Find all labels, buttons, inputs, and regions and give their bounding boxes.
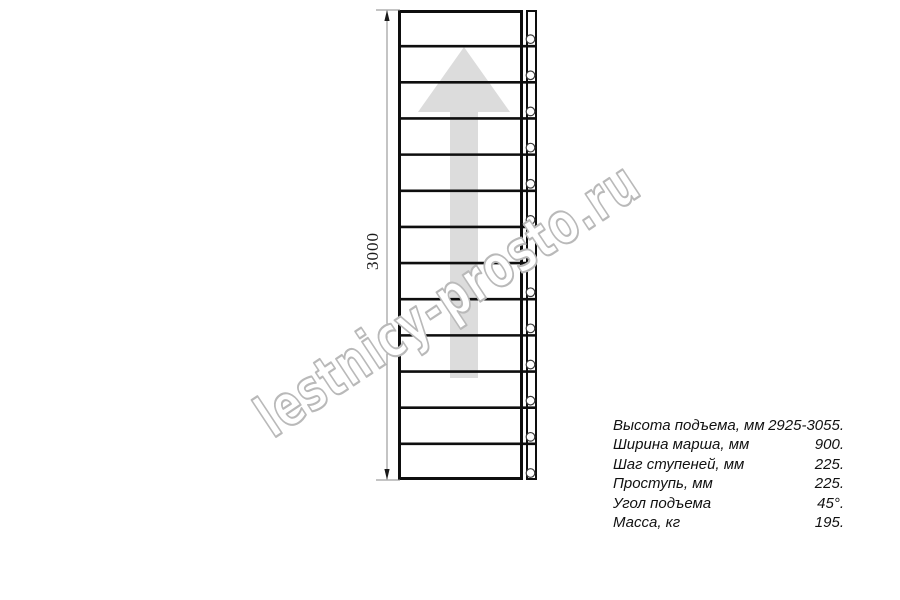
- rail-bolt-circle: [526, 71, 535, 80]
- spec-label: Угол подъема: [613, 494, 711, 513]
- spec-row: Угол подъема 45°.: [613, 494, 844, 513]
- spec-value: 195.: [815, 513, 844, 532]
- spec-value: 225.: [815, 474, 844, 493]
- watermark-text: lestnicy-prosto.ru: [243, 148, 652, 450]
- rail-bolt-circle: [526, 143, 535, 152]
- spec-row: Высота подъема, мм 2925-3055.: [613, 416, 844, 435]
- dimension-label: 3000: [363, 232, 382, 270]
- spec-value: 900.: [815, 435, 844, 454]
- spec-row: Масса, кг 195.: [613, 513, 844, 532]
- spec-label: Проступь, мм: [613, 474, 713, 493]
- rail-bolt-circle: [526, 396, 535, 405]
- spec-label: Шаг ступеней, мм: [613, 455, 744, 474]
- rail-bolt-circle: [526, 288, 535, 297]
- rail-bolt-circle: [526, 360, 535, 369]
- spec-row: Проступь, мм 225.: [613, 474, 844, 493]
- spec-value: 45°.: [817, 494, 844, 513]
- drawing-canvas: 3000 lestnicy-prosto.ru Высота подъема, …: [0, 0, 900, 600]
- rail-bolt-circle: [526, 35, 535, 44]
- rail-bolt-circle: [526, 433, 535, 442]
- rail-bolt-circle: [526, 324, 535, 333]
- dimension-3000: 3000: [363, 10, 400, 480]
- spec-table: Высота подъема, мм 2925-3055. Ширина мар…: [613, 416, 844, 532]
- spec-value: 2925-3055.: [768, 416, 844, 435]
- spec-label: Высота подъема, мм: [613, 416, 765, 435]
- rail-bolt-circle: [526, 107, 535, 116]
- spec-row: Ширина марша, мм 900.: [613, 435, 844, 454]
- spec-label: Масса, кг: [613, 513, 680, 532]
- spec-label: Ширина марша, мм: [613, 435, 749, 454]
- spec-value: 225.: [815, 455, 844, 474]
- dimension-arrowhead-down-icon: [384, 469, 389, 480]
- rail-bolt-circle: [526, 469, 535, 478]
- rail-bolt-circle: [526, 179, 535, 188]
- spec-row: Шаг ступеней, мм 225.: [613, 455, 844, 474]
- dimension-arrowhead-up-icon: [384, 10, 389, 21]
